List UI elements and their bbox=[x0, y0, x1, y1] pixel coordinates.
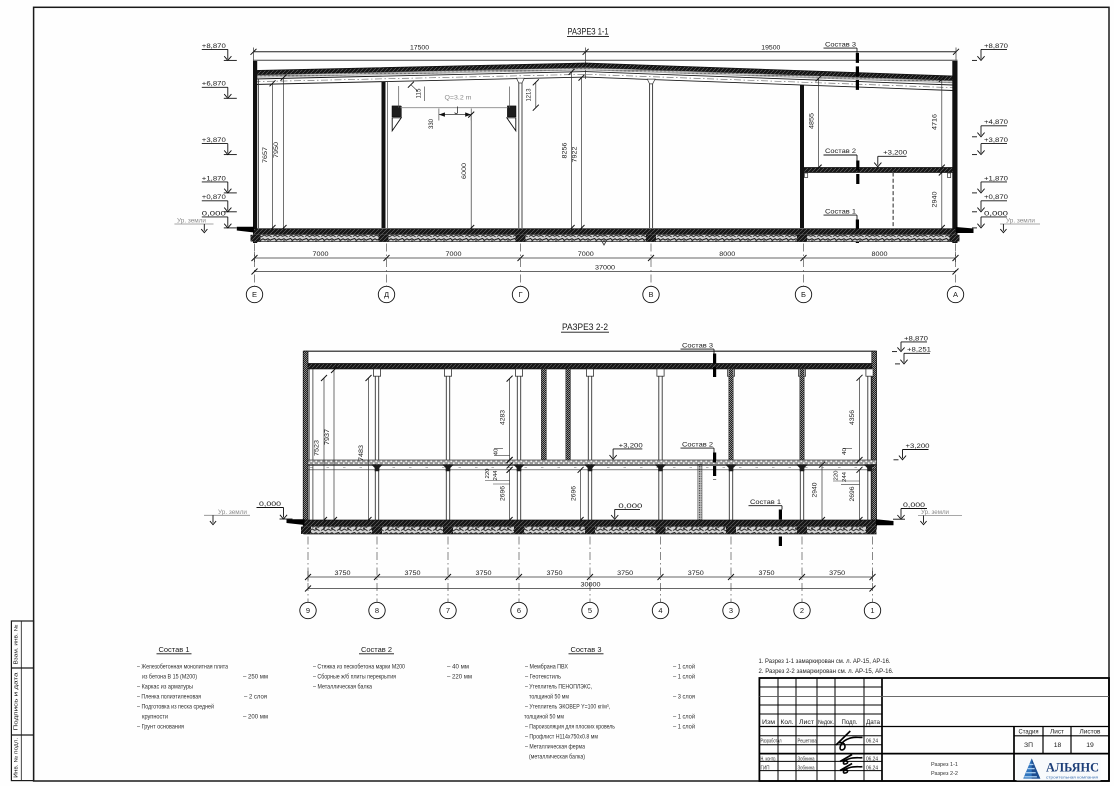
svg-text:1213: 1213 bbox=[526, 88, 532, 102]
svg-text:Состав 2: Состав 2 bbox=[361, 647, 392, 654]
svg-text:Зобнина: Зобнина bbox=[798, 756, 815, 762]
svg-text:+3,870: +3,870 bbox=[202, 137, 226, 144]
svg-text:06.24: 06.24 bbox=[866, 756, 878, 762]
svg-text:+1,870: +1,870 bbox=[202, 175, 226, 182]
svg-text:– 220 мм: – 220 мм bbox=[447, 674, 472, 681]
svg-text:8000: 8000 bbox=[872, 251, 889, 258]
svg-text:+8,870: +8,870 bbox=[904, 335, 928, 342]
svg-text:Зобнина: Зобнина bbox=[798, 765, 815, 771]
svg-text:3750: 3750 bbox=[688, 570, 705, 577]
svg-text:Взам. инв. №: Взам. инв. № bbox=[14, 625, 20, 665]
svg-text:Г: Г bbox=[518, 290, 522, 299]
svg-text:2. Разрез 2-2 замаркирован см.: 2. Разрез 2-2 замаркирован см. л. АР-15,… bbox=[759, 668, 894, 675]
svg-text:4356: 4356 bbox=[850, 409, 856, 425]
svg-text:3750: 3750 bbox=[405, 570, 422, 577]
svg-text:244: 244 bbox=[842, 471, 848, 482]
svg-text:А: А bbox=[953, 290, 958, 299]
svg-text:строительная компания: строительная компания bbox=[1046, 775, 1098, 779]
svg-text:4: 4 bbox=[658, 606, 662, 615]
svg-text:5: 5 bbox=[588, 606, 592, 615]
svg-text:Кол.: Кол. bbox=[781, 720, 794, 726]
svg-text:7950: 7950 bbox=[274, 141, 280, 158]
svg-text:17500: 17500 bbox=[410, 45, 429, 52]
svg-text:– Профлист Н114х750х0.8 мм: – Профлист Н114х750х0.8 мм bbox=[525, 734, 598, 741]
svg-text:Q=3.2 m: Q=3.2 m bbox=[445, 95, 472, 102]
svg-text:8256: 8256 bbox=[562, 142, 568, 159]
svg-text:+1,870: +1,870 bbox=[984, 175, 1008, 182]
svg-text:крупности: крупности bbox=[142, 714, 168, 721]
svg-text:220: 220 bbox=[485, 469, 491, 479]
svg-text:(металлическая балка): (металлическая балка) bbox=[529, 753, 585, 761]
svg-text:0,000: 0,000 bbox=[618, 503, 642, 510]
svg-text:+3,200: +3,200 bbox=[883, 150, 907, 157]
svg-text:40: 40 bbox=[493, 449, 499, 456]
svg-text:0,000: 0,000 bbox=[984, 210, 1008, 217]
svg-text:РАЗРЕЗ 1-1: РАЗРЕЗ 1-1 bbox=[568, 27, 609, 38]
svg-text:1. Разрез 1-1 замаркирован см.: 1. Разрез 1-1 замаркирован см. л. АР-15,… bbox=[759, 658, 891, 665]
svg-text:+0,870: +0,870 bbox=[984, 194, 1008, 201]
svg-text:Н. контр.: Н. контр. bbox=[761, 756, 777, 762]
svg-text:Состав 1: Состав 1 bbox=[750, 499, 782, 506]
svg-text:– Железобетонная монолитная п: – Железобетонная монолитная плита bbox=[137, 663, 228, 671]
svg-text:– 40 мм: – 40 мм bbox=[447, 664, 469, 671]
svg-text:3750: 3750 bbox=[759, 570, 776, 577]
svg-text:РАЗРЕЗ 2-2: РАЗРЕЗ 2-2 bbox=[562, 322, 608, 333]
svg-text:– Геотекстиль: – Геотекстиль bbox=[525, 674, 562, 681]
svg-text:Ур. земли: Ур. земли bbox=[1006, 217, 1036, 224]
svg-text:4855: 4855 bbox=[809, 112, 815, 129]
svg-text:19: 19 bbox=[1086, 742, 1094, 749]
svg-text:– Утеплитель ЭКОВЕР Y=100 кг/м: – Утеплитель ЭКОВЕР Y=100 кг/м³, bbox=[525, 704, 610, 711]
svg-text:6: 6 bbox=[517, 606, 521, 615]
svg-text:2696: 2696 bbox=[571, 485, 577, 501]
svg-text:+8,870: +8,870 bbox=[984, 43, 1008, 50]
svg-text:+6,870: +6,870 bbox=[202, 81, 226, 88]
svg-text:30000: 30000 bbox=[581, 582, 602, 589]
svg-text:1: 1 bbox=[870, 606, 874, 615]
svg-text:2696: 2696 bbox=[500, 485, 506, 501]
svg-text:2696: 2696 bbox=[850, 486, 856, 502]
svg-text:– 200 мм: – 200 мм bbox=[243, 714, 268, 721]
svg-text:№док.: №док. bbox=[818, 719, 834, 726]
svg-text:Состав 2: Состав 2 bbox=[682, 441, 714, 448]
svg-text:ЗП: ЗП bbox=[1024, 742, 1033, 749]
svg-text:0,000: 0,000 bbox=[259, 501, 281, 508]
svg-text:244: 244 bbox=[493, 470, 499, 481]
svg-text:Листов: Листов bbox=[1080, 730, 1101, 736]
svg-text:Е: Е bbox=[252, 290, 257, 299]
svg-text:9: 9 bbox=[306, 606, 310, 615]
svg-text:7937: 7937 bbox=[325, 428, 331, 445]
svg-text:+3,870: +3,870 bbox=[984, 137, 1008, 144]
svg-text:– Утеплитель ПЕНОПЛЭКС,: – Утеплитель ПЕНОПЛЭКС, bbox=[525, 684, 592, 691]
svg-text:6000: 6000 bbox=[462, 162, 468, 179]
svg-text:4283: 4283 bbox=[500, 409, 506, 425]
svg-text:В: В bbox=[648, 290, 653, 299]
svg-text:Б: Б bbox=[801, 290, 806, 299]
svg-text:Дата: Дата bbox=[866, 720, 881, 726]
svg-text:+3,200: +3,200 bbox=[906, 443, 930, 450]
svg-text:4716: 4716 bbox=[933, 113, 939, 130]
svg-text:+4,870: +4,870 bbox=[984, 119, 1008, 126]
svg-text:2940: 2940 bbox=[933, 191, 939, 208]
svg-text:– 250 мм: – 250 мм bbox=[243, 674, 268, 681]
svg-text:Подп.: Подп. bbox=[842, 720, 858, 726]
svg-text:+3,200: +3,200 bbox=[619, 442, 643, 449]
svg-text:– 2 слоя: – 2 слоя bbox=[244, 694, 267, 701]
svg-text:– 1 слой: – 1 слой bbox=[673, 663, 695, 671]
svg-text:7: 7 bbox=[446, 606, 450, 615]
svg-text:Лист: Лист bbox=[799, 720, 814, 726]
svg-text:Лист: Лист bbox=[1050, 730, 1064, 736]
svg-text:37000: 37000 bbox=[595, 264, 616, 271]
svg-text:– Мембрана ПВХ: – Мембрана ПВХ bbox=[525, 663, 569, 671]
svg-text:– Металлическая балка: – Металлическая балка bbox=[313, 683, 372, 691]
svg-text:Разработал: Разработал bbox=[761, 739, 782, 745]
svg-text:Разрез 1-1: Разрез 1-1 bbox=[931, 762, 958, 768]
svg-text:+8,870: +8,870 bbox=[202, 43, 226, 50]
svg-text:18: 18 bbox=[1054, 742, 1062, 749]
svg-text:– Пленка полиэтиленовая: – Пленка полиэтиленовая bbox=[137, 694, 201, 701]
svg-text:– Пароизоляция для плоских кро: – Пароизоляция для плоских кровель bbox=[525, 724, 616, 731]
svg-text:+8,251: +8,251 bbox=[907, 347, 931, 354]
svg-text:3750: 3750 bbox=[547, 570, 564, 577]
svg-text:Разрез 2-2: Разрез 2-2 bbox=[931, 771, 958, 777]
svg-text:+0,870: +0,870 bbox=[202, 194, 226, 201]
svg-text:40: 40 bbox=[842, 448, 848, 455]
svg-text:7523: 7523 bbox=[315, 439, 321, 456]
svg-text:115: 115 bbox=[417, 88, 423, 99]
svg-text:– Сборные ж/б плиты перекрытия: – Сборные ж/б плиты перекрытия bbox=[313, 673, 396, 681]
svg-text:– Грунт основания: – Грунт основания bbox=[137, 724, 184, 731]
svg-text:19500: 19500 bbox=[761, 45, 780, 52]
svg-text:7657: 7657 bbox=[263, 146, 269, 163]
svg-text:– Подготовка из песка средней: – Подготовка из песка средней bbox=[137, 703, 214, 711]
svg-text:– 1 слой: – 1 слой bbox=[673, 713, 695, 721]
svg-text:3: 3 bbox=[729, 606, 733, 615]
svg-text:330: 330 bbox=[429, 118, 435, 129]
svg-text:Д: Д bbox=[384, 290, 389, 299]
svg-text:– Стяжка из пескобетона марки: – Стяжка из пескобетона марки М200 bbox=[313, 663, 405, 671]
svg-text:8: 8 bbox=[375, 606, 379, 615]
svg-text:Подпись и дата: Подпись и дата bbox=[14, 672, 20, 730]
svg-text:7922: 7922 bbox=[572, 146, 578, 163]
svg-text:2940: 2940 bbox=[813, 482, 819, 498]
svg-text:7000: 7000 bbox=[578, 251, 595, 258]
svg-text:Ур. земли: Ур. земли bbox=[921, 509, 950, 516]
svg-text:толщиной 50 мм: толщиной 50 мм bbox=[529, 693, 569, 701]
svg-text:АЛЬЯНС: АЛЬЯНС bbox=[1046, 760, 1099, 774]
svg-text:7000: 7000 bbox=[446, 251, 463, 258]
svg-text:Состав 2: Состав 2 bbox=[825, 148, 857, 155]
svg-text:0,000: 0,000 bbox=[903, 502, 925, 509]
svg-text:– 1 слой: – 1 слой bbox=[673, 673, 695, 681]
svg-text:0,000: 0,000 bbox=[202, 210, 226, 217]
svg-text:Состав 1: Состав 1 bbox=[825, 208, 857, 215]
svg-text:Состав 3: Состав 3 bbox=[571, 647, 602, 654]
svg-text:ГИП: ГИП bbox=[761, 765, 770, 771]
svg-text:Изм: Изм bbox=[762, 720, 775, 726]
svg-text:7000: 7000 bbox=[313, 251, 330, 258]
svg-text:Инв. № подл.: Инв. № подл. bbox=[14, 738, 20, 778]
svg-text:3750: 3750 bbox=[476, 570, 493, 577]
svg-text:3750: 3750 bbox=[829, 570, 846, 577]
svg-text:– 1 слой: – 1 слой bbox=[673, 723, 695, 731]
svg-text:– Каркас из арматуры: – Каркас из арматуры bbox=[137, 684, 193, 691]
svg-text:3750: 3750 bbox=[617, 570, 634, 577]
svg-text:– 3 слоя: – 3 слоя bbox=[673, 694, 695, 701]
svg-text:220: 220 bbox=[833, 471, 839, 481]
svg-text:толщиной 50 мм: толщиной 50 мм bbox=[524, 713, 564, 721]
svg-text:– Металлическая ферма: – Металлическая ферма bbox=[525, 744, 585, 751]
svg-text:из бетона В 15 (М200): из бетона В 15 (М200) bbox=[142, 673, 197, 681]
svg-text:Стадия: Стадия bbox=[1019, 730, 1039, 736]
svg-text:Состав 1: Состав 1 bbox=[159, 647, 190, 654]
svg-text:Ур. земли: Ур. земли bbox=[177, 217, 207, 224]
svg-text:3750: 3750 bbox=[335, 570, 352, 577]
svg-text:Состав 3: Состав 3 bbox=[682, 342, 714, 349]
svg-text:Состав 3: Состав 3 bbox=[825, 41, 857, 48]
svg-text:8000: 8000 bbox=[719, 251, 736, 258]
svg-text:06.24: 06.24 bbox=[866, 765, 878, 771]
svg-text:7483: 7483 bbox=[359, 444, 365, 461]
svg-text:06.24: 06.24 bbox=[866, 739, 878, 745]
svg-text:Решетова: Решетова bbox=[798, 739, 817, 745]
svg-text:Ур. земли: Ур. земли bbox=[218, 509, 248, 516]
svg-text:2: 2 bbox=[800, 606, 804, 615]
